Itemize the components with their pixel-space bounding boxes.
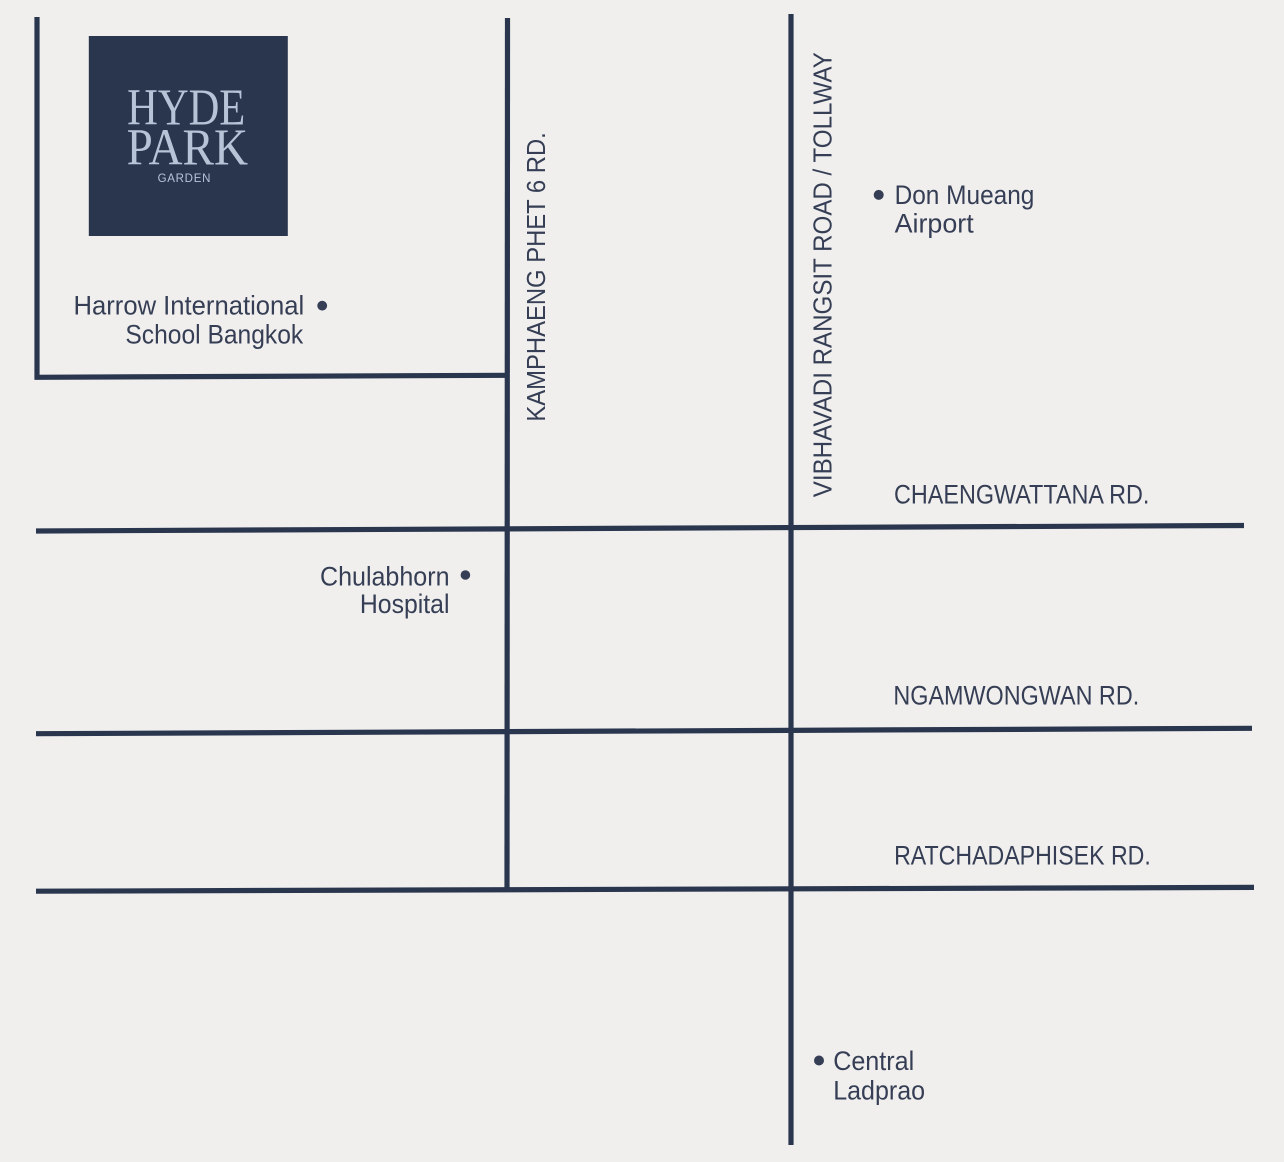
svg-text:GARDEN: GARDEN [158,173,211,185]
svg-text:Harrow International: Harrow International [74,290,305,320]
svg-text:Airport: Airport [895,208,975,238]
svg-text:Ladprao: Ladprao [833,1075,925,1105]
svg-text:Don Mueang: Don Mueang [895,180,1035,210]
svg-text:NGAMWONGWAN RD.: NGAMWONGWAN RD. [893,680,1139,710]
svg-text:RATCHADAPHISEK RD.: RATCHADAPHISEK RD. [894,841,1151,871]
svg-text:Hospital: Hospital [360,589,450,619]
svg-text:CHAENGWATTANA RD.: CHAENGWATTANA RD. [894,479,1149,509]
svg-text:VIBHAVADI RANGSIT ROAD / TOLLW: VIBHAVADI RANGSIT ROAD / TOLLWAY [808,52,838,497]
svg-text:School Bangkok: School Bangkok [125,319,303,349]
svg-text:Chulabhorn: Chulabhorn [320,561,450,591]
svg-text:PARK: PARK [127,120,249,177]
svg-text:KAMPHAENG PHET 6 RD.: KAMPHAENG PHET 6 RD. [523,132,551,421]
svg-text:Central: Central [833,1046,914,1076]
